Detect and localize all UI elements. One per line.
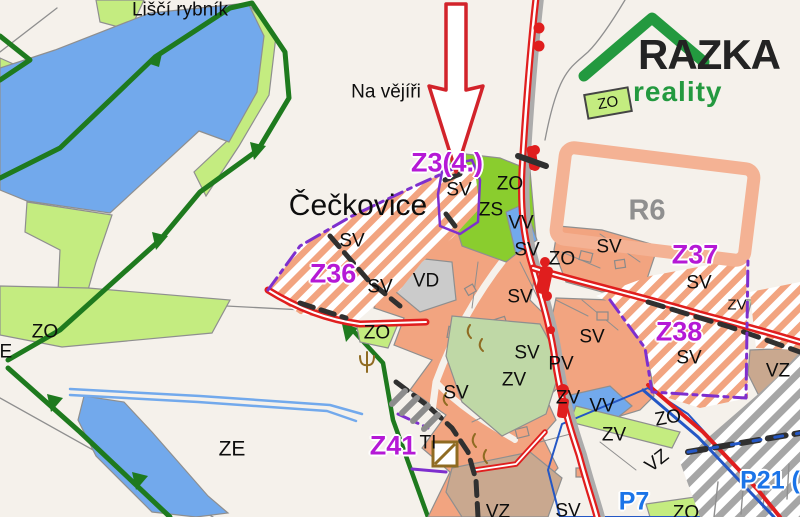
logo-brand-text: RAZKA xyxy=(638,31,780,79)
zoning-map-canvas: Liščí rybníkNa vějířiČečkoviceZ3(4.)SVZO… xyxy=(0,0,800,517)
ti-utility-symbol xyxy=(433,442,457,466)
logo-sub-text: reality xyxy=(633,76,723,108)
